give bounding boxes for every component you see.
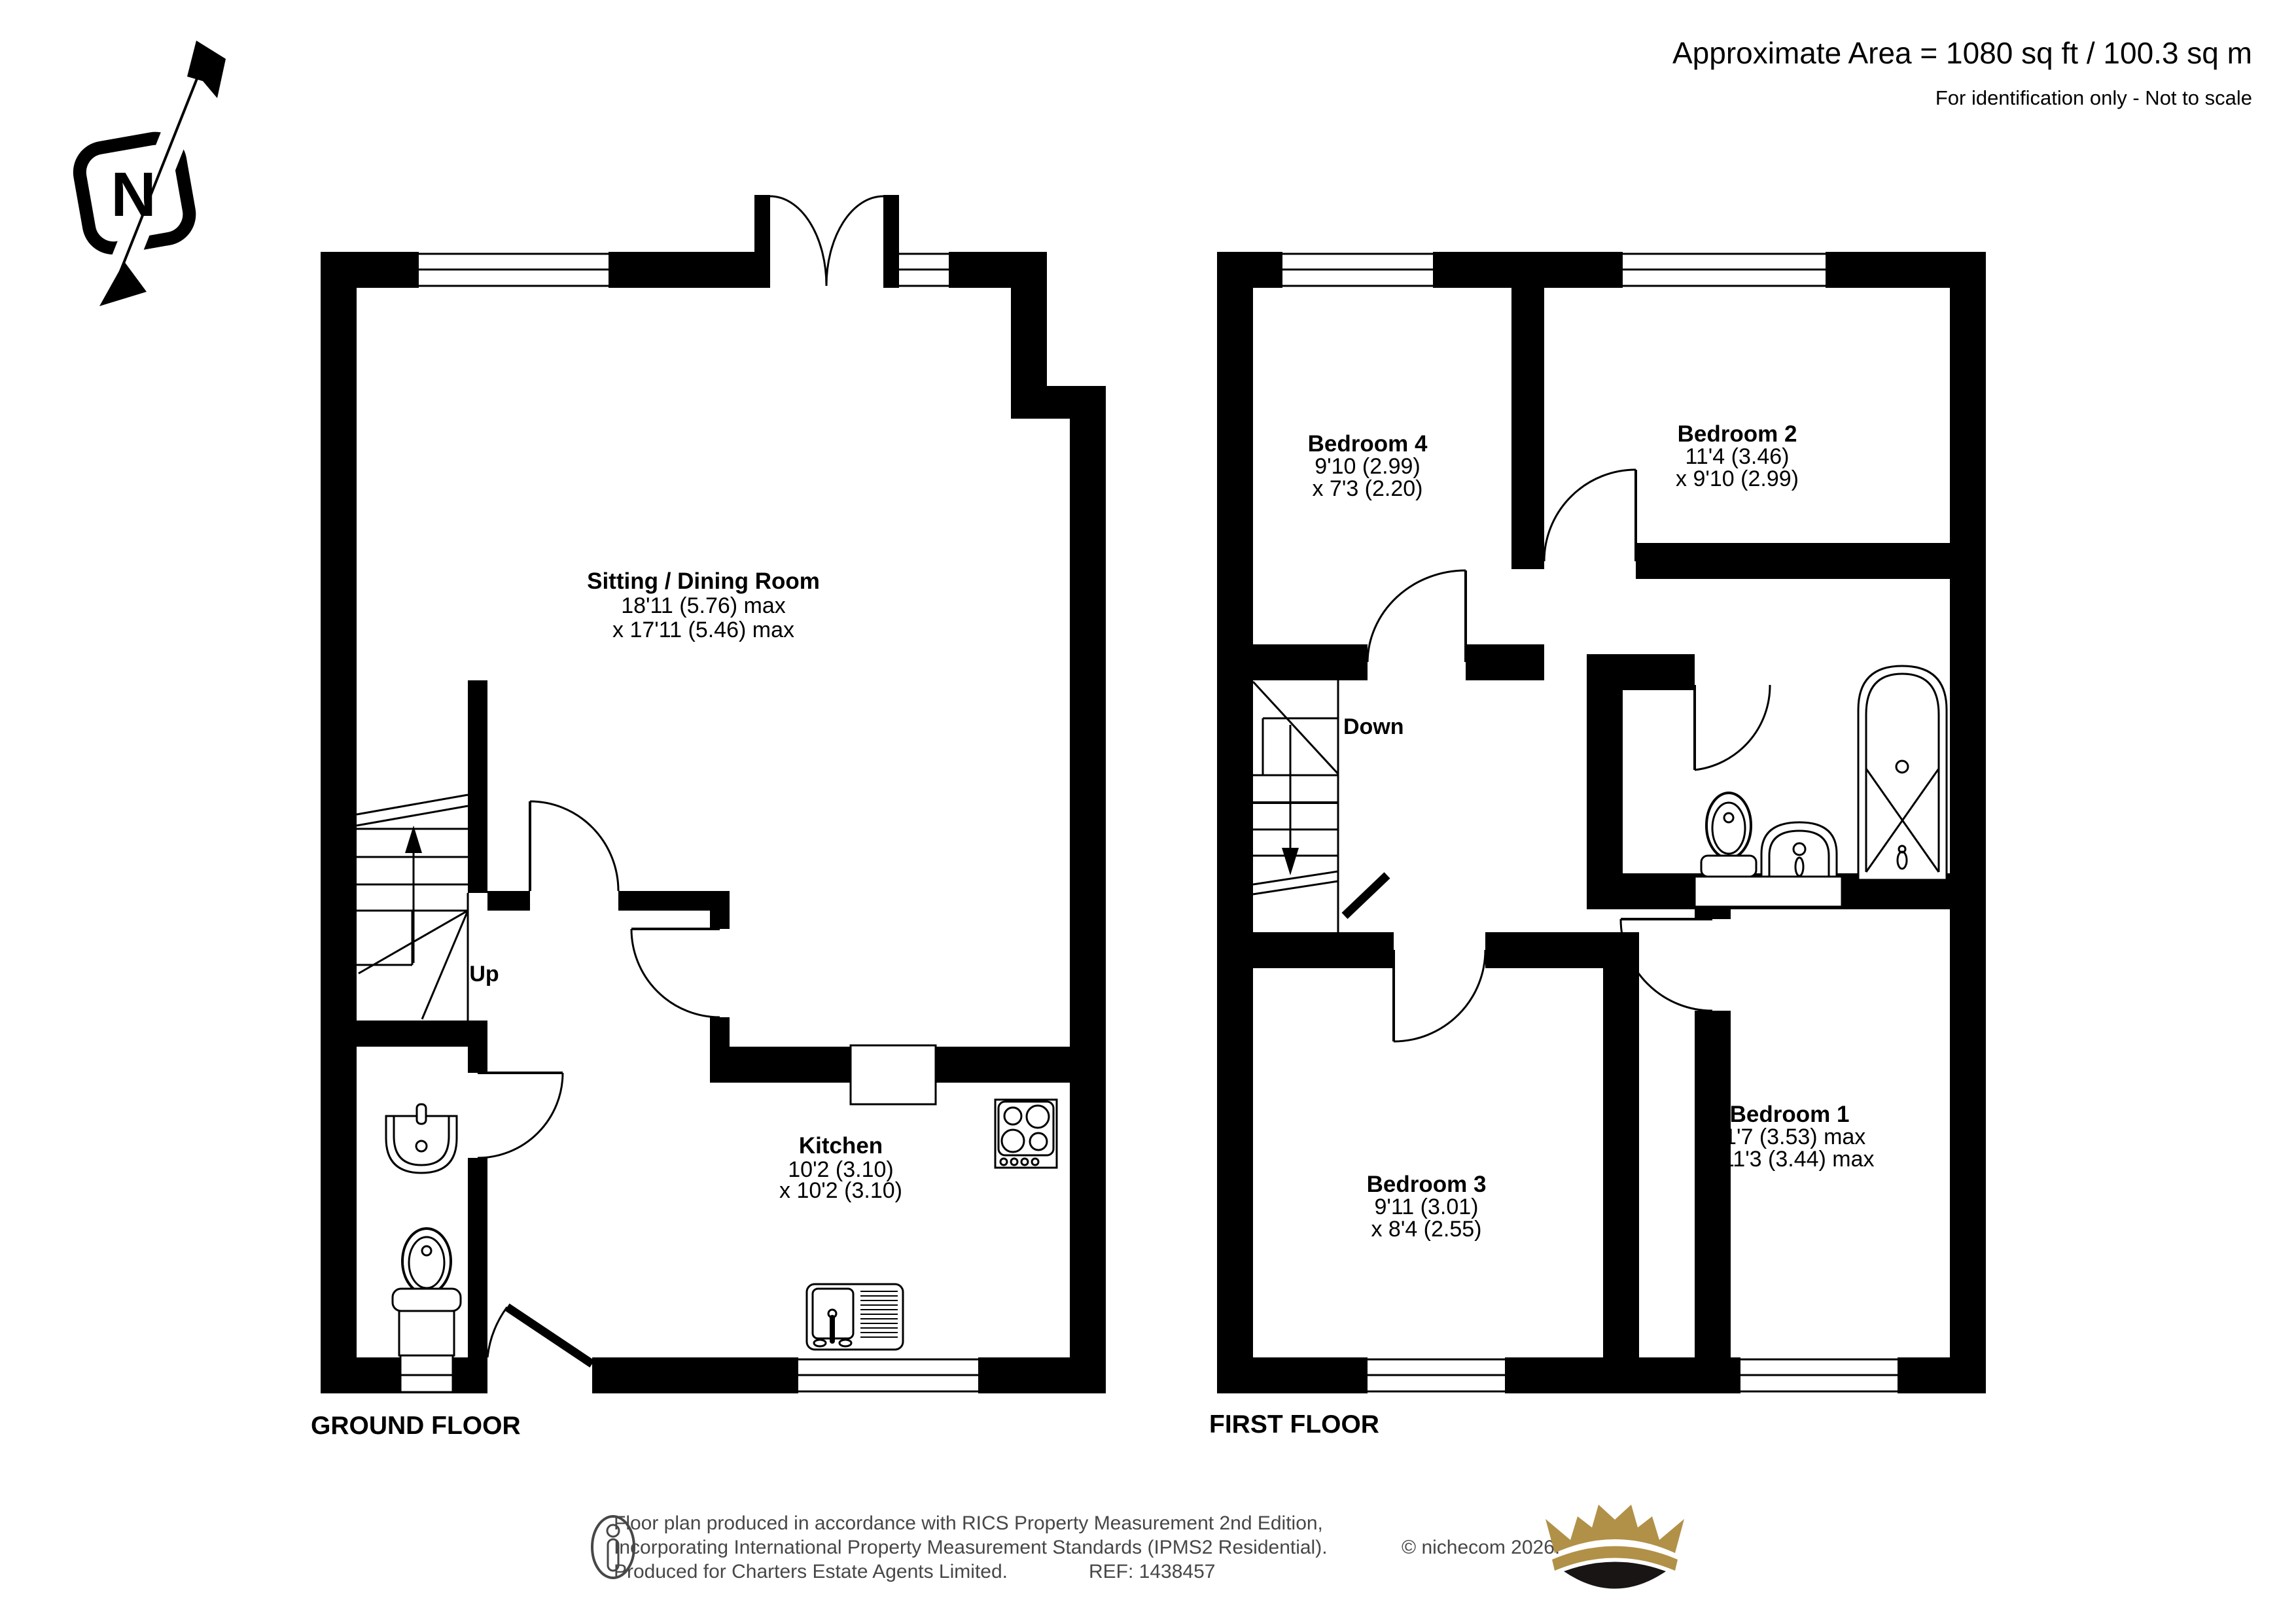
ground-floor-windows — [419, 252, 978, 1393]
door-arc — [1368, 570, 1466, 662]
svg-text:9'11 (3.01): 9'11 (3.01) — [1375, 1195, 1479, 1219]
cupboard-door-leaf — [1345, 875, 1387, 916]
french-door-arc — [770, 196, 826, 286]
bathroom-toilet-icon — [1701, 793, 1756, 877]
stairs-down-label: Down — [1343, 714, 1404, 739]
room-label-kitchen: Kitchen — [799, 1133, 883, 1159]
svg-text:18'11 (5.76) max: 18'11 (5.76) max — [621, 593, 786, 618]
room-label-bedroom2: Bedroom 2 — [1678, 421, 1797, 447]
compass-north-label: N — [111, 160, 156, 230]
identification-note-text: For identification only - Not to scale — [1935, 86, 2252, 109]
stairs-down-arrowhead — [1282, 848, 1299, 875]
ground-floor-room-labels: Sitting / Dining Room 18'11 (5.76) max x… — [587, 568, 902, 1203]
front-door-leaf — [507, 1307, 592, 1364]
door-arc — [1394, 950, 1485, 1041]
footer-text: Floor plan produced in accordance with R… — [614, 1512, 1560, 1582]
svg-text:x 7'3 (2.20): x 7'3 (2.20) — [1312, 476, 1422, 501]
window — [1282, 252, 1433, 288]
footer-ref: REF: 1438457 — [1089, 1561, 1215, 1582]
door-arc — [1695, 685, 1770, 770]
svg-text:x 8'4 (2.55): x 8'4 (2.55) — [1371, 1217, 1481, 1242]
ground-floor-walls — [321, 195, 1106, 1393]
first-floor-stairs — [1253, 680, 1338, 935]
svg-text:x 9'10 (2.99): x 9'10 (2.99) — [1676, 466, 1799, 491]
ground-floor-stairs — [357, 795, 468, 1021]
room-label-bedroom3: Bedroom 3 — [1367, 1172, 1487, 1197]
wc-sink-icon — [386, 1104, 457, 1173]
svg-text:11'7 (3.53) max: 11'7 (3.53) max — [1714, 1125, 1866, 1149]
front-door-arc — [487, 1307, 507, 1357]
room-label-bedroom1: Bedroom 1 — [1730, 1102, 1850, 1127]
approximate-area-text: Approximate Area = 1080 sq ft / 100.3 sq… — [1672, 36, 2252, 70]
french-door-arc — [826, 196, 883, 286]
window — [1623, 252, 1826, 288]
door-arc — [478, 1073, 563, 1158]
window — [798, 1357, 978, 1393]
room-label-bedroom4: Bedroom 4 — [1308, 431, 1428, 457]
svg-text:x 10'2 (3.10): x 10'2 (3.10) — [779, 1178, 902, 1203]
door-arc — [1544, 470, 1636, 561]
north-compass-icon: N — [76, 41, 226, 306]
footer-line2: Incorporating International Property Mea… — [614, 1537, 1328, 1558]
footer-line1: Floor plan produced in accordance with R… — [614, 1512, 1323, 1534]
window — [1368, 1357, 1505, 1393]
window — [419, 252, 609, 288]
floorplan-canvas: Approximate Area = 1080 sq ft / 100.3 sq… — [0, 0, 2296, 1623]
footer-copyright: © nichecom 2026. — [1402, 1537, 1560, 1558]
room-label-sitting: Sitting / Dining Room — [587, 568, 820, 594]
first-floor-title: FIRST FLOOR — [1209, 1410, 1379, 1439]
window — [899, 252, 949, 288]
hob-icon — [995, 1100, 1057, 1168]
stairs-up-label: Up — [469, 962, 499, 986]
crown-logo-icon — [1545, 1505, 1684, 1589]
footer-line3: Produced for Charters Estate Agents Limi… — [614, 1561, 1008, 1582]
bathroom-sink-icon — [1761, 822, 1837, 879]
floorplan-page: Approximate Area = 1080 sq ft / 100.3 sq… — [0, 0, 2296, 1623]
door-arc — [631, 929, 720, 1017]
door-arc — [530, 801, 618, 891]
wc-toilet-icon — [393, 1229, 461, 1392]
kitchen-unit — [851, 1045, 936, 1104]
kitchen-sink-icon — [807, 1284, 903, 1350]
svg-text:11'4 (3.46): 11'4 (3.46) — [1686, 444, 1790, 469]
svg-text:x 17'11 (5.46) max: x 17'11 (5.46) max — [612, 618, 794, 642]
svg-text:x 11'3 (3.44) max: x 11'3 (3.44) max — [1704, 1147, 1874, 1172]
bathtub-icon — [1858, 666, 1947, 880]
ground-floor-title: GROUND FLOOR — [311, 1412, 521, 1440]
bathroom-vanity — [1695, 877, 1842, 907]
window — [1740, 1357, 1898, 1393]
svg-text:9'10 (2.99): 9'10 (2.99) — [1315, 454, 1420, 479]
